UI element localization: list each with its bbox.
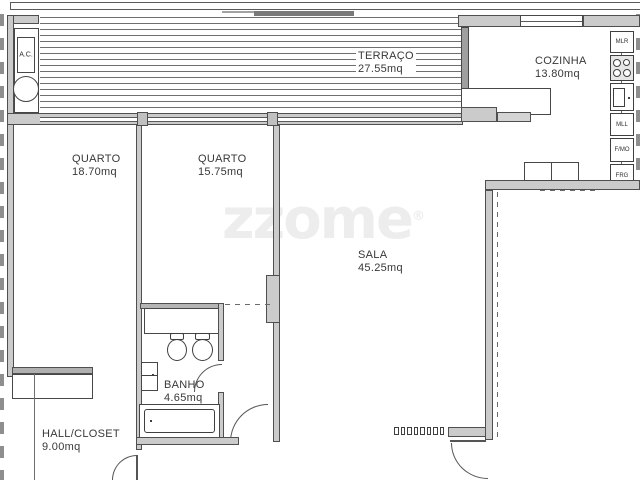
railing-detail-bar [254,11,354,16]
railing-end-left [10,2,11,10]
sala-right-dashed-line [497,192,498,440]
wall-sala-right [485,190,493,440]
railing-line-outer [10,2,640,3]
burner-icon [613,69,621,77]
toilet-icon [192,339,213,361]
pillar-bedrooms [137,112,148,126]
fridge-label: FRG [611,173,633,179]
radiator-segment [407,427,412,435]
bedroom2-label: QUARTO 15.75mq [198,153,246,178]
wall-bath-bottom [136,437,239,445]
floor-plan: zzome® A.C. TERRAÇO 27.55mq COZINHA 13.8… [0,0,640,480]
radiator-segment [401,427,406,435]
burner-icon [613,59,621,67]
kitchen-opening-dashed [540,190,600,191]
ac-unit-box: A.C. [17,37,35,73]
washing-machine-box: MLR [610,31,634,53]
property-line-right [636,14,640,190]
sala-label: SALA 45.25mq [358,249,403,274]
hall-label: HALL/CLOSET 9.00mq [42,428,120,453]
washing-machine-label: MLR [611,39,633,45]
wall-bedroom-divider [136,125,142,450]
wall-kitchen-bottom [485,180,640,190]
closet-divider-line [34,374,35,480]
bedroom1-label: QUARTO 18.70mq [72,153,120,178]
kitchen-peninsula-right [551,162,579,181]
pillar-corridor [267,112,278,126]
bidet-icon [167,339,187,361]
kitchen-label: COZINHA 13.80mq [535,55,587,80]
washbasin-line [142,375,157,376]
radiator-segment [394,427,399,435]
kitchen-window-mullion [521,21,582,22]
terrace-label: TERRAÇO 27.55mq [356,50,416,75]
property-line-left [0,14,4,480]
radiator-icon [394,427,444,435]
sink-drain-dot [628,97,630,99]
kitchen-peninsula-left [524,162,552,181]
wall-kitchen-top-left [458,15,521,27]
wall-kitchen-top-right [583,15,640,27]
sink-icon [610,83,634,111]
water-heater-icon [13,76,39,102]
bathtub-drain-dot [150,420,152,422]
wall-sala-bottom-stub [448,427,486,437]
radiator-segment [427,427,432,435]
sink-basin [613,88,625,107]
wall-kitchen-counter-step [461,107,497,122]
bathtub-inner [144,409,215,433]
kitchen-window [520,15,583,27]
corridor-opening-dashed [225,304,271,305]
radiator-segment [420,427,425,435]
door-arc-sala [451,443,488,479]
door-arc-bathroom [194,364,222,392]
railing-line-inner [10,9,640,10]
door-arc-hall [112,455,137,480]
radiator-segment [414,427,419,435]
wall-left-exterior [7,15,14,377]
oven-microwave-box: F/MO [610,138,634,162]
bath-cabinet [144,308,220,334]
dishwasher-box: MLL [610,113,634,136]
appliance-column: MLR MLL F/MO FRG [610,31,634,188]
watermark: zzome® [222,192,425,248]
wall-bath-right-upper [218,303,224,361]
wall-corridor-pilaster [266,275,280,323]
wall-closet-top [12,367,93,374]
oven-microwave-label: F/MO [611,147,633,153]
bathtub-icon [139,404,220,438]
burner-icon [623,59,630,66]
washbasin-icon [141,362,158,391]
wall-kitchen-counter-step2 [497,112,531,122]
registered-mark-icon: ® [412,209,425,224]
stove-icon [610,55,634,81]
hall-closet-box [12,374,93,399]
dishwasher-label: MLL [611,122,633,128]
terrace-window-glazing [40,117,461,122]
burner-icon [623,69,631,77]
ac-label: A.C. [18,52,34,59]
washbasin-drain-dot [152,374,154,376]
radiator-segment [440,427,445,435]
radiator-segment [433,427,438,435]
door-leaf-sala [450,440,486,442]
